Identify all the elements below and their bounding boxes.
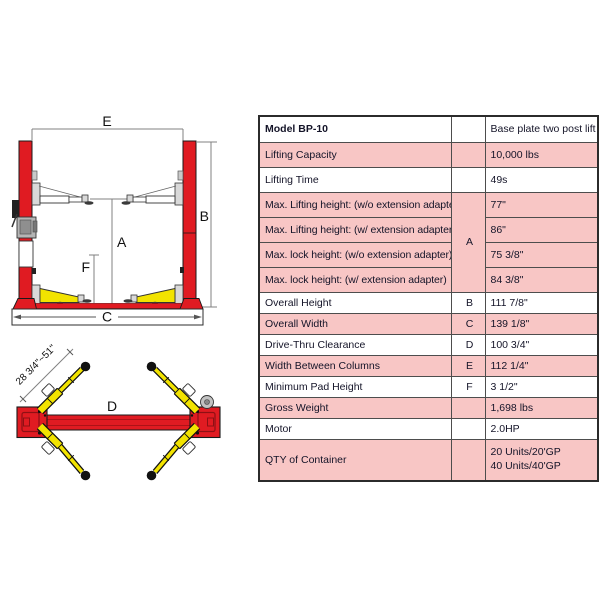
front-view-drawing: E B A F [12,113,217,325]
lowered-arm-right [124,285,184,305]
spec-table: Model BP-10 Base plate two post lift Lif… [258,115,599,482]
spec-letter-cell [451,439,485,481]
spec-label-cell: Drive-Thru Clearance [259,334,451,355]
spec-letter-cell: C [451,313,485,334]
table-row: Max. lock height: (w/ extension adapter)… [259,267,598,292]
oil-tank [19,241,33,267]
dim-label-e: E [102,113,111,129]
spec-letter-cell [451,418,485,439]
spec-value-cell: 49s [485,167,598,192]
spec-value-cell: 112 1/4" [485,355,598,376]
switch-box [12,200,19,218]
spec-letter-cell [451,142,485,167]
arm-pad [147,471,157,481]
swing-arm-upper-left [40,362,90,411]
arm-pad [81,471,91,481]
table-row: QTY of Container 20 Units/20'GP 40 Units… [259,439,598,481]
table-row: Model BP-10 Base plate two post lift [259,116,598,142]
spec-value-cell: 86" [485,217,598,242]
swing-arm-lower-right [147,426,197,480]
spec-value-cell: 20 Units/20'GP 40 Units/40'GP [485,439,598,481]
spec-label-cell: Lifting Capacity [259,142,451,167]
spec-label-cell: Minimum Pad Height [259,376,451,397]
swing-arm-upper-right [147,362,197,411]
table-row: Gross Weight 1,698 lbs [259,397,598,418]
arm-pad [81,362,91,372]
spec-value-cell: 2.0HP [485,418,598,439]
swing-arm-lower-left [40,426,90,480]
spec-label-cell: Max. lock height: (w/ extension adapter) [259,267,451,292]
table-row: Minimum Pad Height F 3 1/2" [259,376,598,397]
spec-value-cell: 77" [485,192,598,217]
spec-letter-cell: B [451,292,485,313]
spec-value-cell: 3 1/2" [485,376,598,397]
spec-letter-cell [451,397,485,418]
spec-value-cell: 84 3/8" [485,267,598,292]
table-row: Lifting Capacity 10,000 lbs [259,142,598,167]
spec-label-cell: Gross Weight [259,397,451,418]
model-type: Base plate two post lift [485,116,598,142]
top-view-drawing: D 28 3/4"~51" [14,343,220,481]
table-row: Max. Lifting height: (w/o extension adap… [259,192,598,217]
dim-label-b: B [200,208,209,224]
arm-pad [147,362,157,372]
spec-value-cell: 75 3/8" [485,242,598,267]
spec-label-cell: QTY of Container [259,439,451,481]
spec-value-cell: 111 7/8" [485,292,598,313]
spec-label-cell: Max. lock height: (w/o extension adapter… [259,242,451,267]
spec-letter-cell [451,167,485,192]
arm-reach-dimension: 28 3/4"~51" [14,343,59,388]
raised-arm-right [122,183,184,205]
spec-table-container: Model BP-10 Base plate two post lift Lif… [258,115,599,482]
spec-letter-cell [451,116,485,142]
spec-value-cell: 100 3/4" [485,334,598,355]
spec-value-cell: 10,000 lbs [485,142,598,167]
spec-label-cell: Max. Lifting height: (w/o extension adap… [259,192,451,217]
spec-label-cell: Overall Width [259,313,451,334]
dim-label-c: C [102,309,112,325]
cross-beam [47,415,190,430]
dim-label-d: D [107,398,117,414]
dim-label-a: A [117,234,127,250]
dim-label-f: F [81,259,90,275]
spec-letter-cell: F [451,376,485,397]
table-row: Width Between Columns E 112 1/4" [259,355,598,376]
spec-label-cell: Max. Lifting height: (w/ extension adapt… [259,217,451,242]
raised-arm-left [32,183,94,205]
table-row: Max. Lifting height: (w/ extension adapt… [259,217,598,242]
spec-label-cell: Overall Height [259,292,451,313]
table-row: Drive-Thru Clearance D 100 3/4" [259,334,598,355]
right-post [183,141,196,307]
table-row: Lifting Time 49s [259,167,598,192]
lift-diagram: E B A F [0,0,240,520]
spec-value-cell: 1,698 lbs [485,397,598,418]
spec-label-cell: Width Between Columns [259,355,451,376]
table-row: Motor 2.0HP [259,418,598,439]
lowered-arm-left [32,285,92,305]
spec-label-cell: Motor [259,418,451,439]
table-row: Overall Height B 111 7/8" [259,292,598,313]
spec-letter-cell: E [451,355,485,376]
spec-letter-cell-a: A [451,192,485,292]
spec-letter-cell: D [451,334,485,355]
spec-label-cell: Lifting Time [259,167,451,192]
spec-sheet-page: E B A F [0,0,600,600]
model-name: Model BP-10 [259,116,451,142]
spec-value-cell: 139 1/8" [485,313,598,334]
table-row: Max. lock height: (w/o extension adapter… [259,242,598,267]
table-row: Overall Width C 139 1/8" [259,313,598,334]
